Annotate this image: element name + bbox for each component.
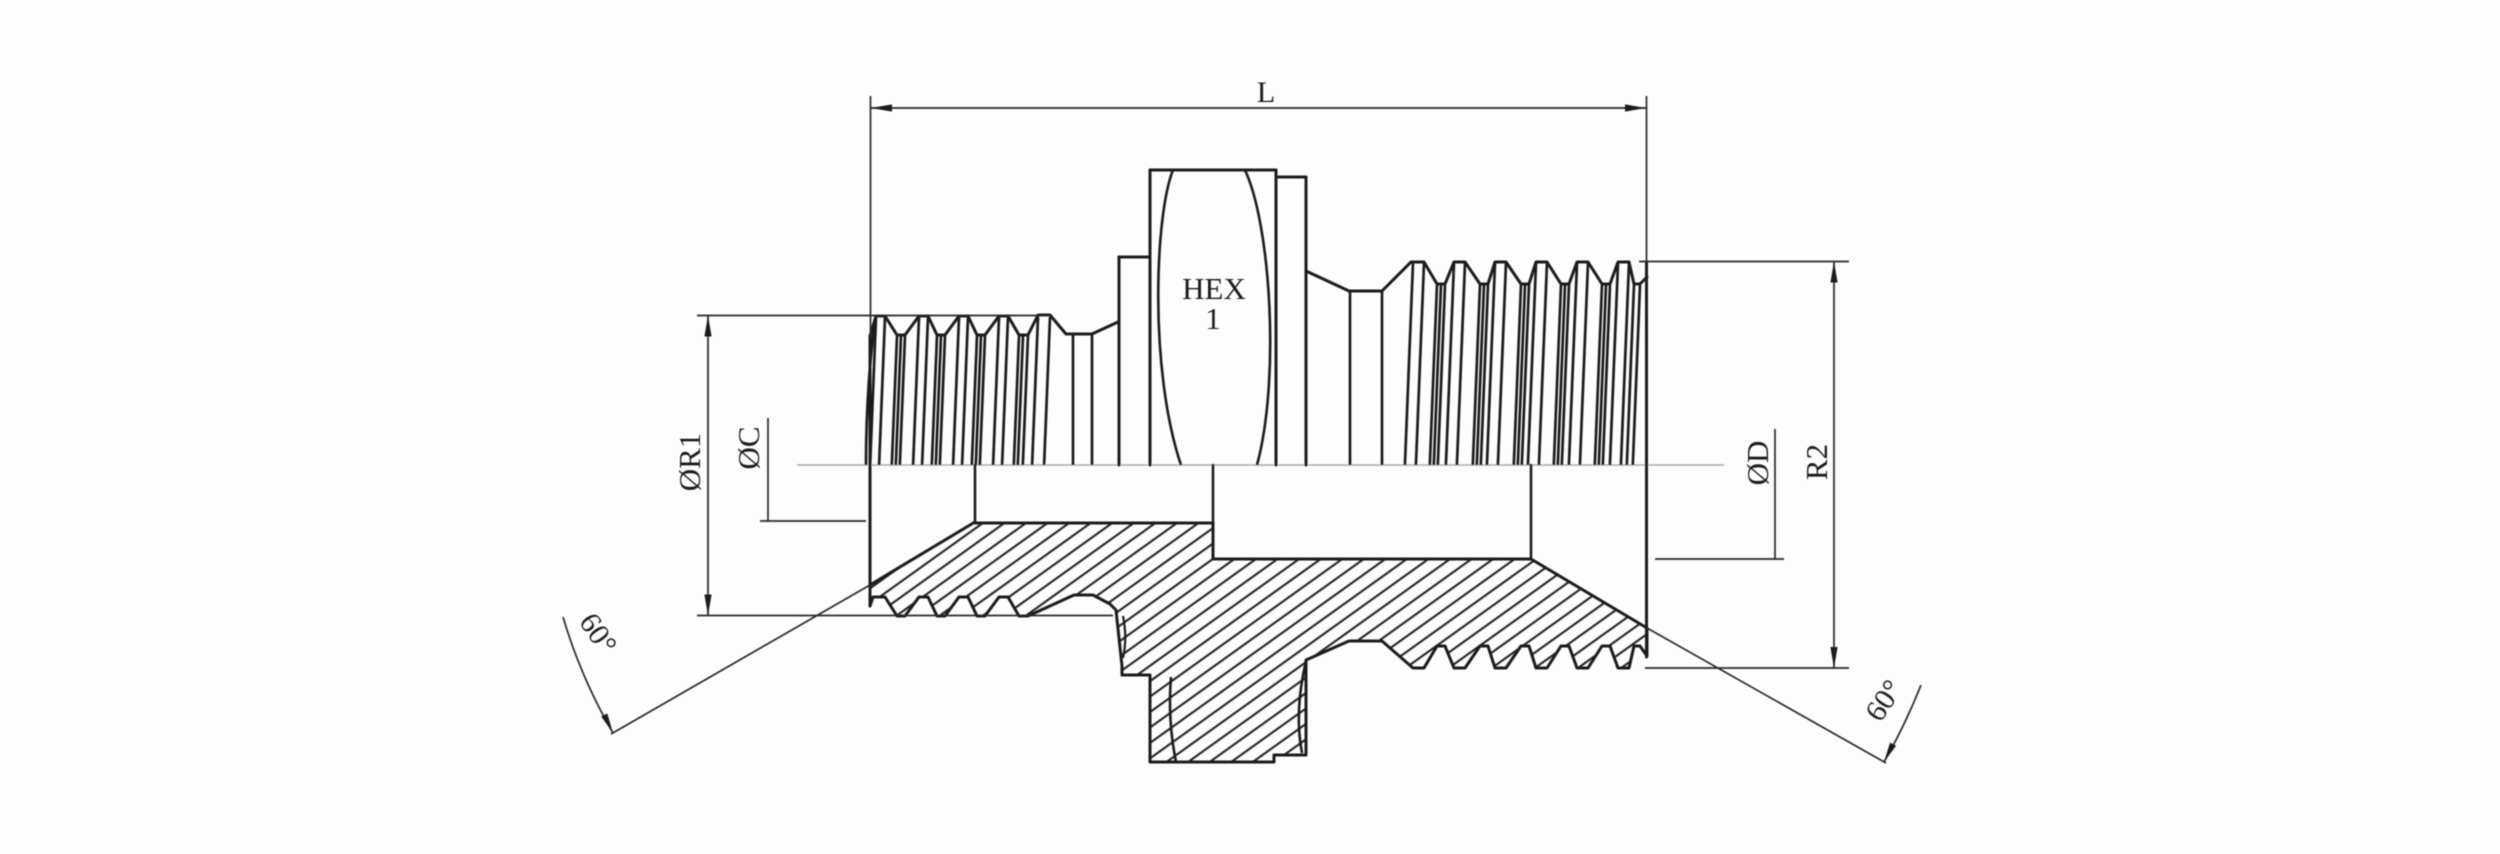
svg-text:1: 1	[1205, 301, 1221, 336]
svg-text:ØD: ØD	[1740, 441, 1775, 486]
svg-text:L: L	[1257, 76, 1275, 109]
svg-text:R2: R2	[1799, 444, 1834, 480]
svg-text:ØR1: ØR1	[672, 433, 707, 492]
svg-text:ØC: ØC	[731, 426, 766, 469]
